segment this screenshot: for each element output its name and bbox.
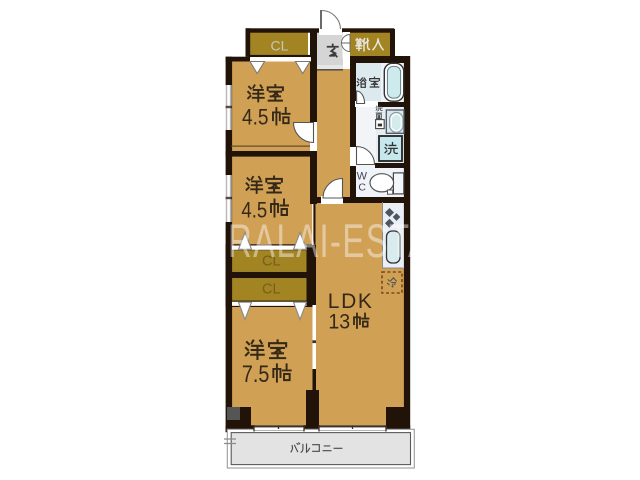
svg-text:7.5: 7.5 — [242, 361, 270, 388]
svg-text:13: 13 — [328, 311, 350, 334]
svg-text:RALAI-ESTATE: RALAI-ESTATE — [228, 214, 474, 267]
svg-text:4.5: 4.5 — [242, 105, 269, 130]
svg-text:CL: CL — [271, 38, 289, 54]
svg-text:C: C — [358, 182, 366, 194]
svg-text:CL: CL — [262, 282, 281, 298]
